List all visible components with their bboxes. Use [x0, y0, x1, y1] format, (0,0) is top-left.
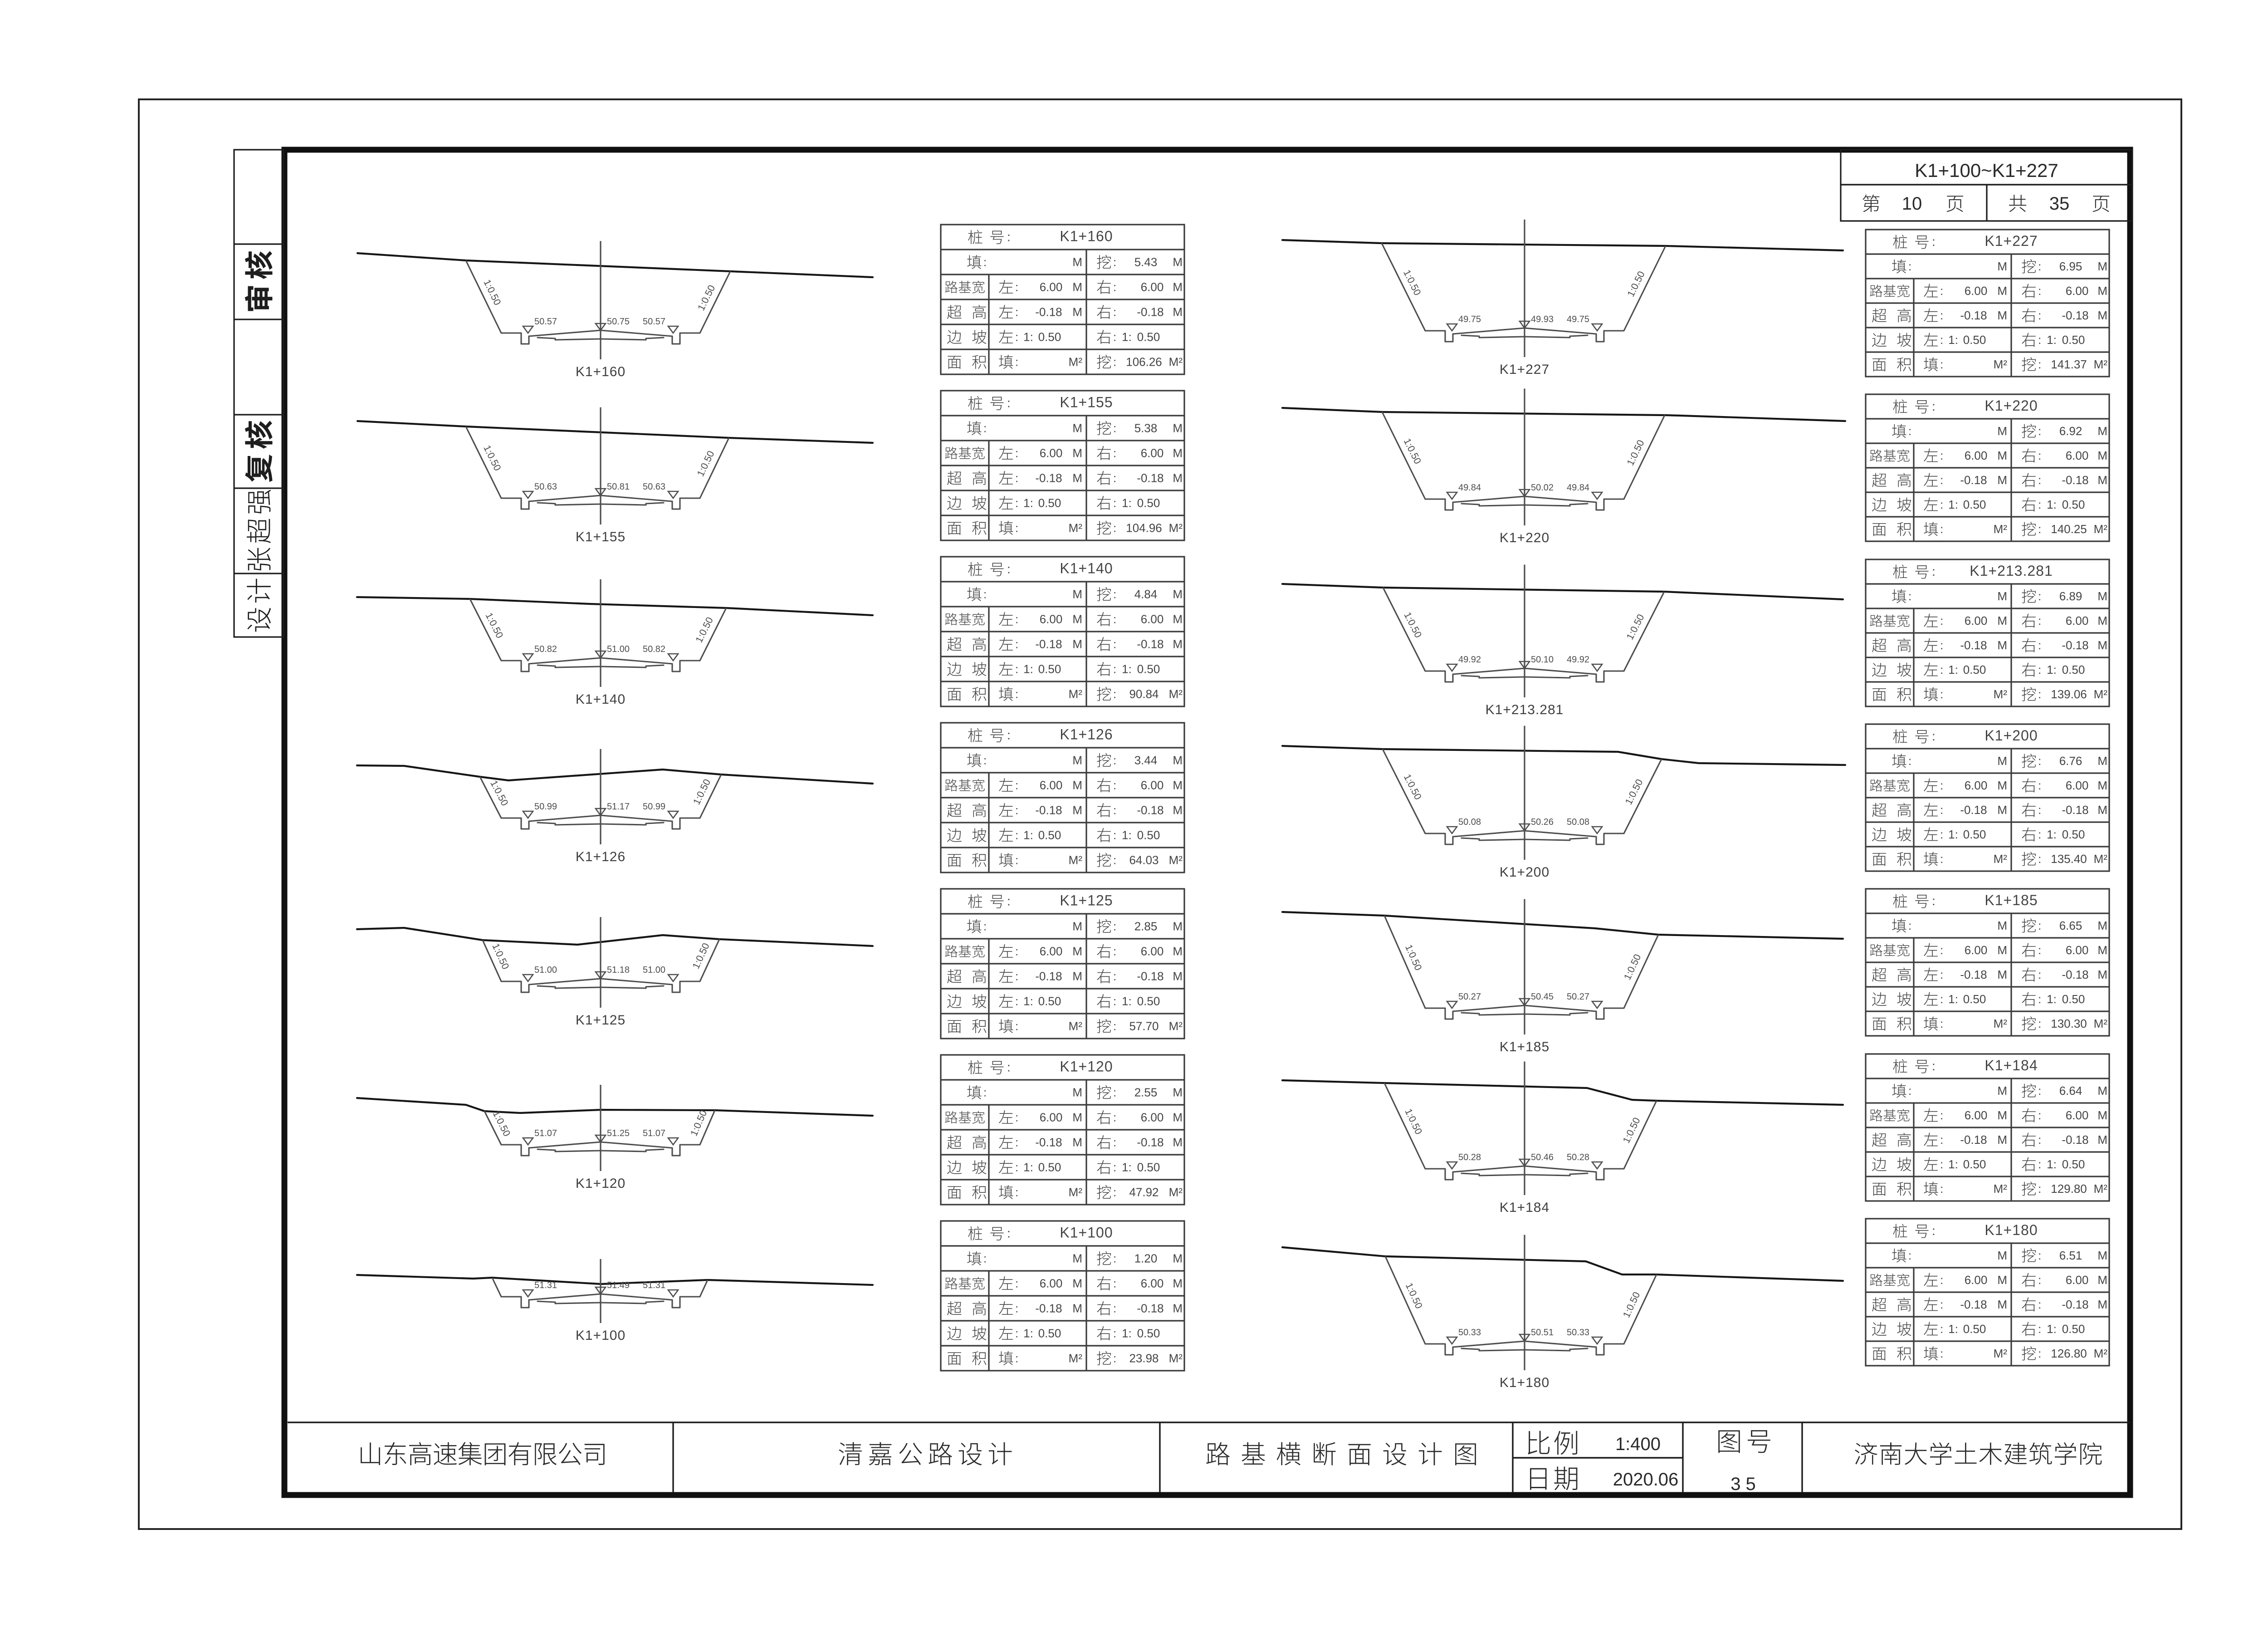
svg-text::: :	[1015, 804, 1018, 817]
svg-text::: :	[1932, 399, 1936, 413]
svg-text:M: M	[1072, 1111, 1082, 1124]
svg-text:6.00: 6.00	[1141, 945, 1164, 958]
svg-text::: :	[1007, 230, 1011, 244]
svg-text:50.46: 50.46	[1531, 1152, 1554, 1162]
svg-text::: :	[1113, 446, 1116, 460]
svg-text:M²: M²	[1994, 522, 2008, 536]
svg-text::: :	[2038, 1322, 2041, 1336]
svg-text::: :	[1113, 255, 1116, 269]
svg-text:M: M	[1072, 255, 1082, 269]
svg-text:M: M	[1072, 754, 1082, 767]
svg-text::: :	[2038, 1273, 2041, 1287]
svg-text::: :	[2038, 1108, 2041, 1122]
svg-text:M: M	[2097, 309, 2107, 322]
svg-text:M: M	[1072, 446, 1082, 460]
svg-text:M: M	[2097, 260, 2107, 273]
svg-text:104.96: 104.96	[1126, 521, 1162, 535]
svg-text:1:: 1:	[1948, 1322, 1958, 1336]
svg-text:M: M	[2097, 638, 2107, 652]
svg-text:6.00: 6.00	[1141, 613, 1164, 626]
svg-text::: :	[1015, 1161, 1018, 1174]
svg-text:M: M	[1173, 637, 1183, 651]
svg-text:3 5: 3 5	[1730, 1474, 1756, 1494]
svg-text::: :	[1113, 1277, 1116, 1290]
svg-text:50.63: 50.63	[534, 482, 557, 492]
svg-text:1:: 1:	[1122, 496, 1132, 510]
svg-text:-0.18: -0.18	[1137, 1136, 1163, 1149]
svg-text::: :	[2038, 358, 2041, 371]
svg-text:M: M	[1072, 1086, 1082, 1099]
svg-text:1:: 1:	[1948, 828, 1958, 841]
svg-text:K1+140: K1+140	[1060, 560, 1113, 577]
svg-text::: :	[1940, 968, 1943, 981]
svg-text:M²: M²	[1069, 1352, 1083, 1365]
svg-text:135.40: 135.40	[2051, 852, 2087, 866]
svg-text::: :	[1113, 1136, 1116, 1149]
svg-text:0.50: 0.50	[1137, 1161, 1160, 1174]
svg-text::: :	[2038, 473, 2041, 487]
svg-text::: :	[2038, 638, 2041, 652]
svg-text::: :	[1932, 1224, 1936, 1238]
svg-text:0.50: 0.50	[2062, 498, 2085, 511]
svg-text::: :	[1015, 280, 1018, 294]
svg-text:50.99: 50.99	[534, 802, 557, 812]
svg-text::: :	[1015, 355, 1018, 369]
svg-text:139.06: 139.06	[2051, 687, 2087, 701]
svg-text:0.50: 0.50	[1963, 828, 1986, 841]
svg-text:1:0.50: 1:0.50	[695, 449, 717, 478]
svg-text::: :	[1007, 1226, 1011, 1240]
svg-text:0.50: 0.50	[1038, 330, 1061, 344]
svg-text::: :	[1113, 613, 1116, 626]
svg-text:K1+227: K1+227	[1984, 233, 2038, 249]
svg-text:M: M	[2097, 943, 2107, 957]
svg-text::: :	[1113, 280, 1116, 294]
svg-text::: :	[1940, 498, 1943, 511]
svg-text::: :	[2038, 498, 2041, 511]
svg-text:49.93: 49.93	[1531, 314, 1554, 324]
svg-text:M: M	[2097, 1084, 2107, 1098]
svg-text:129.80: 129.80	[2051, 1182, 2087, 1196]
svg-text:0.50: 0.50	[1137, 330, 1160, 344]
svg-text:-0.18: -0.18	[1960, 309, 1987, 322]
svg-text:6.65: 6.65	[2059, 919, 2082, 932]
svg-text:M: M	[2097, 473, 2107, 487]
svg-text:M: M	[1997, 589, 2007, 603]
svg-text:51.49: 51.49	[607, 1280, 630, 1290]
svg-text:-0.18: -0.18	[1960, 638, 1987, 652]
svg-text:6.51: 6.51	[2059, 1249, 2082, 1262]
svg-text:1:400: 1:400	[1615, 1434, 1661, 1454]
svg-text::: :	[1113, 637, 1116, 651]
svg-text:-0.18: -0.18	[1960, 1298, 1987, 1311]
svg-text:0.50: 0.50	[1038, 995, 1061, 1008]
svg-text:50.57: 50.57	[643, 317, 665, 327]
svg-text:51.00: 51.00	[534, 965, 557, 975]
svg-text:M: M	[1072, 779, 1082, 792]
svg-text:1:: 1:	[2047, 498, 2057, 511]
svg-text::: :	[1113, 471, 1116, 485]
svg-text::: :	[1940, 473, 1943, 487]
svg-text:6.00: 6.00	[1141, 1111, 1164, 1124]
svg-text::: :	[2038, 1249, 2041, 1262]
svg-text:M: M	[1173, 1277, 1183, 1290]
svg-text::: :	[1015, 779, 1018, 792]
svg-text:1:: 1:	[1948, 498, 1958, 511]
svg-text::: :	[2038, 803, 2041, 817]
svg-text:M: M	[2097, 1133, 2107, 1147]
svg-text:90.84: 90.84	[1129, 687, 1158, 701]
svg-text:M: M	[1997, 968, 2007, 981]
svg-text:1:: 1:	[1023, 828, 1033, 842]
svg-text:K1+200: K1+200	[1500, 865, 1549, 880]
svg-text:M²: M²	[1994, 852, 2008, 866]
svg-text::: :	[2038, 992, 2041, 1006]
svg-text:6.00: 6.00	[1965, 943, 1988, 957]
svg-text:K1+155: K1+155	[1060, 394, 1113, 411]
svg-text:-0.18: -0.18	[1960, 968, 1987, 981]
svg-text:0.50: 0.50	[1038, 496, 1061, 510]
svg-text:M: M	[1072, 1252, 1082, 1265]
svg-text:K1+120: K1+120	[576, 1176, 626, 1191]
svg-text:2020.06: 2020.06	[1613, 1470, 1679, 1490]
svg-text:M: M	[1072, 637, 1082, 651]
svg-text::: :	[1940, 1182, 1943, 1196]
svg-text:M: M	[1997, 614, 2007, 627]
svg-text:M: M	[1072, 613, 1082, 626]
svg-text:6.00: 6.00	[1965, 1273, 1988, 1287]
svg-text:1:0.50: 1:0.50	[1403, 1107, 1424, 1136]
svg-text::: :	[1908, 754, 1911, 768]
svg-text:M: M	[2097, 1273, 2107, 1287]
svg-text:K1+180: K1+180	[1500, 1375, 1549, 1390]
svg-text:0.50: 0.50	[1038, 828, 1061, 842]
svg-text:M: M	[1997, 424, 2007, 438]
svg-text:-0.18: -0.18	[1035, 970, 1062, 983]
svg-text::: :	[2038, 424, 2041, 438]
svg-text:M: M	[1072, 920, 1082, 933]
svg-text:1:0.50: 1:0.50	[694, 615, 715, 644]
svg-text::: :	[1113, 828, 1116, 842]
svg-text:0.50: 0.50	[1137, 496, 1160, 510]
svg-text::: :	[2038, 1298, 2041, 1311]
svg-text:1:: 1:	[2047, 828, 2057, 841]
svg-text:K1+184: K1+184	[1500, 1200, 1549, 1215]
svg-text:M: M	[1173, 446, 1183, 460]
svg-text:1:: 1:	[1948, 992, 1958, 1006]
svg-text::: :	[1113, 920, 1116, 933]
svg-text:M: M	[1173, 754, 1183, 767]
svg-text:-0.18: -0.18	[1035, 471, 1062, 485]
svg-text:M²: M²	[1169, 1186, 1183, 1199]
svg-text::: :	[1940, 1347, 1943, 1360]
svg-text:51.07: 51.07	[643, 1128, 665, 1138]
svg-text:M: M	[2097, 803, 2107, 817]
svg-text:M: M	[1173, 255, 1183, 269]
svg-text:M²: M²	[1169, 1352, 1183, 1365]
svg-text::: :	[1113, 804, 1116, 817]
svg-text::: :	[1908, 260, 1911, 273]
svg-text:M: M	[1173, 1086, 1183, 1099]
svg-text:1:: 1:	[2047, 992, 2057, 1006]
svg-text:6.00: 6.00	[1965, 284, 1988, 298]
svg-text:1:: 1:	[1948, 333, 1958, 347]
svg-text:M: M	[2097, 754, 2107, 768]
svg-text:M²: M²	[1069, 1186, 1083, 1199]
svg-text:M²: M²	[1994, 687, 2008, 701]
svg-text::: :	[1015, 1302, 1018, 1315]
svg-text::: :	[1007, 1060, 1011, 1074]
svg-text:0.50: 0.50	[1963, 1322, 1986, 1336]
svg-text:K1+213.281: K1+213.281	[1970, 563, 2053, 579]
svg-text::: :	[1932, 564, 1936, 578]
svg-text::: :	[1113, 521, 1116, 535]
svg-text::: :	[1113, 1111, 1116, 1124]
svg-text:M: M	[1072, 471, 1082, 485]
svg-text:0.50: 0.50	[2062, 828, 2085, 841]
svg-text::: :	[1015, 853, 1018, 867]
svg-text::: :	[1015, 496, 1018, 510]
svg-text:0.50: 0.50	[1038, 1161, 1061, 1174]
svg-text:M: M	[1173, 471, 1183, 485]
svg-text:M: M	[1072, 804, 1082, 817]
svg-text:6.00: 6.00	[2066, 614, 2089, 627]
svg-text:50.75: 50.75	[607, 317, 630, 327]
svg-text:K1+184: K1+184	[1984, 1057, 2038, 1073]
svg-text:-0.18: -0.18	[2062, 1133, 2088, 1147]
svg-text::: :	[1940, 1273, 1943, 1287]
svg-text:35: 35	[2049, 194, 2070, 214]
svg-text:0.50: 0.50	[1038, 1327, 1061, 1340]
svg-text:M²: M²	[2094, 687, 2108, 701]
svg-text:M: M	[1997, 473, 2007, 487]
svg-text:M: M	[2097, 424, 2107, 438]
svg-text::: :	[1015, 1352, 1018, 1365]
svg-text::: :	[1015, 662, 1018, 676]
svg-text:K1+220: K1+220	[1984, 397, 2038, 414]
svg-text::: :	[1113, 1302, 1116, 1315]
svg-text:M: M	[1072, 1302, 1082, 1315]
svg-text:M: M	[1997, 754, 2007, 768]
svg-text:50.99: 50.99	[643, 802, 665, 812]
svg-text:51.00: 51.00	[607, 644, 630, 654]
svg-text::: :	[1932, 235, 1936, 249]
svg-text::: :	[1015, 970, 1018, 983]
svg-text::: :	[1015, 995, 1018, 1008]
svg-text:M: M	[2097, 1249, 2107, 1262]
svg-text:1:: 1:	[1023, 330, 1033, 344]
svg-text:0.50: 0.50	[2062, 1322, 2085, 1336]
svg-text:6.00: 6.00	[1040, 613, 1063, 626]
svg-text:1:: 1:	[1023, 496, 1033, 510]
svg-text::: :	[2038, 919, 2041, 932]
svg-text::: :	[1113, 945, 1116, 958]
svg-text::: :	[2038, 1084, 2041, 1098]
svg-text:0.50: 0.50	[2062, 1157, 2085, 1171]
svg-text:-0.18: -0.18	[1035, 637, 1062, 651]
svg-text:M²: M²	[1994, 358, 2008, 371]
svg-text::: :	[1113, 305, 1116, 319]
svg-text:50.33: 50.33	[1567, 1328, 1589, 1338]
svg-text:1:: 1:	[1122, 828, 1132, 842]
svg-text::: :	[2038, 1133, 2041, 1147]
svg-text:1:: 1:	[1023, 1327, 1033, 1340]
svg-text:50.81: 50.81	[607, 482, 630, 492]
svg-text:-0.18: -0.18	[1035, 305, 1062, 319]
svg-text::: :	[983, 422, 987, 435]
svg-text::: :	[2038, 589, 2041, 603]
svg-text:0.50: 0.50	[2062, 333, 2085, 347]
svg-text::: :	[1940, 1157, 1943, 1171]
svg-text::: :	[2038, 1347, 2041, 1360]
svg-text:1:0.50: 1:0.50	[488, 779, 510, 808]
svg-text:M: M	[1997, 1084, 2007, 1098]
svg-text::: :	[1940, 449, 1943, 462]
svg-text:M²: M²	[2094, 1182, 2108, 1196]
svg-text:M²: M²	[2094, 1347, 2108, 1360]
svg-text:M: M	[1173, 280, 1183, 294]
svg-text::: :	[1113, 1252, 1116, 1265]
svg-text:50.08: 50.08	[1458, 817, 1481, 827]
svg-text:1:0.50: 1:0.50	[1625, 438, 1647, 467]
svg-text:49.75: 49.75	[1567, 314, 1589, 324]
svg-text:6.00: 6.00	[1040, 945, 1063, 958]
svg-text:M: M	[2097, 614, 2107, 627]
svg-text:4.84: 4.84	[1134, 588, 1158, 601]
svg-text:2.55: 2.55	[1134, 1086, 1158, 1099]
svg-text:6.76: 6.76	[2059, 754, 2082, 768]
svg-text:50.27: 50.27	[1458, 992, 1481, 1002]
svg-text:K1+200: K1+200	[1984, 727, 2038, 744]
svg-text::: :	[1015, 1327, 1018, 1340]
svg-text:M: M	[2097, 589, 2107, 603]
svg-text:50.02: 50.02	[1531, 483, 1554, 493]
svg-text:6.00: 6.00	[2066, 1273, 2089, 1287]
svg-text:51.31: 51.31	[534, 1280, 557, 1290]
svg-text:M: M	[1173, 779, 1183, 792]
svg-text:M²: M²	[1069, 687, 1083, 701]
svg-text:50.27: 50.27	[1567, 992, 1589, 1002]
svg-text:M: M	[1173, 1111, 1183, 1124]
svg-text:-0.18: -0.18	[2062, 473, 2088, 487]
svg-text:M: M	[1072, 305, 1082, 319]
svg-text::: :	[1007, 396, 1011, 410]
svg-text::: :	[1007, 894, 1011, 908]
svg-text:51.18: 51.18	[607, 965, 630, 975]
svg-text::: :	[1015, 1277, 1018, 1290]
svg-text:M: M	[2097, 779, 2107, 792]
svg-text::: :	[1940, 852, 1943, 866]
svg-text::: :	[2038, 852, 2041, 866]
svg-text::: :	[1113, 995, 1116, 1008]
svg-text:0.50: 0.50	[2062, 992, 2085, 1006]
svg-text:K1+120: K1+120	[1060, 1059, 1113, 1075]
svg-text:51.07: 51.07	[534, 1128, 557, 1138]
svg-text:M²: M²	[1169, 521, 1183, 535]
svg-text::: :	[1940, 687, 1943, 701]
svg-text:M: M	[1173, 970, 1183, 983]
svg-text:50.26: 50.26	[1531, 817, 1554, 827]
svg-text::: :	[2038, 943, 2041, 957]
svg-text::: :	[1113, 355, 1116, 369]
svg-text::: :	[1908, 919, 1911, 932]
svg-text:64.03: 64.03	[1129, 853, 1158, 867]
svg-text:6.00: 6.00	[2066, 943, 2089, 957]
svg-text:1:: 1:	[1122, 662, 1132, 676]
svg-text::: :	[2038, 284, 2041, 298]
svg-text:0.50: 0.50	[1963, 1157, 1986, 1171]
svg-text::: :	[1113, 1186, 1116, 1199]
svg-text::: :	[1015, 446, 1018, 460]
svg-text:M: M	[1997, 260, 2007, 273]
svg-text:M: M	[1072, 1136, 1082, 1149]
svg-text:M²: M²	[2094, 522, 2108, 536]
svg-text::: :	[1940, 1298, 1943, 1311]
svg-text:K1+100: K1+100	[1060, 1225, 1113, 1241]
svg-text:6.00: 6.00	[1040, 1277, 1063, 1290]
svg-text::: :	[1940, 779, 1943, 792]
svg-text:M: M	[2097, 284, 2107, 298]
svg-text:-0.18: -0.18	[2062, 309, 2088, 322]
svg-text:6.00: 6.00	[1141, 280, 1164, 294]
svg-text:1:0.50: 1:0.50	[481, 443, 503, 472]
svg-text:1:0.50: 1:0.50	[490, 1109, 512, 1138]
svg-text:49.92: 49.92	[1567, 655, 1589, 665]
svg-text:0.50: 0.50	[1038, 662, 1061, 676]
svg-text:0.50: 0.50	[1137, 995, 1160, 1008]
svg-text::: :	[1940, 1017, 1943, 1030]
svg-text:1:0.50: 1:0.50	[1403, 1281, 1425, 1310]
svg-text:1:0.50: 1:0.50	[1624, 613, 1647, 642]
svg-text:6.00: 6.00	[1040, 1111, 1063, 1124]
svg-text:M: M	[1173, 1302, 1183, 1315]
svg-text::: :	[983, 1086, 987, 1099]
svg-text:50.57: 50.57	[534, 317, 557, 327]
svg-text:-0.18: -0.18	[1960, 803, 1987, 817]
svg-text:1:0.50: 1:0.50	[691, 777, 713, 806]
svg-text:1.20: 1.20	[1134, 1252, 1158, 1265]
svg-text::: :	[1932, 894, 1936, 908]
svg-text:K1+160: K1+160	[576, 364, 626, 379]
svg-text:23.98: 23.98	[1129, 1352, 1158, 1365]
svg-text::: :	[1015, 471, 1018, 485]
svg-text::: :	[1113, 588, 1116, 601]
svg-text:1:0.50: 1:0.50	[688, 1108, 709, 1137]
svg-text::: :	[983, 920, 987, 933]
svg-text:M²: M²	[2094, 358, 2108, 371]
svg-text:-0.18: -0.18	[1035, 1302, 1062, 1315]
svg-text:141.37: 141.37	[2051, 358, 2087, 371]
svg-text:50.28: 50.28	[1458, 1152, 1481, 1162]
svg-text:M: M	[2097, 449, 2107, 462]
svg-text:50.63: 50.63	[643, 482, 665, 492]
svg-text:0.50: 0.50	[1963, 992, 1986, 1006]
svg-text:47.92: 47.92	[1129, 1186, 1158, 1199]
svg-text:K1+126: K1+126	[1060, 726, 1113, 743]
svg-text:50.82: 50.82	[643, 644, 665, 654]
svg-text:1:0.50: 1:0.50	[1621, 1116, 1642, 1145]
svg-text:M: M	[1997, 1133, 2007, 1147]
svg-text:K1+100~K1+227: K1+100~K1+227	[1915, 160, 2058, 181]
svg-text:M²: M²	[2094, 852, 2108, 866]
svg-text::: :	[2038, 754, 2041, 768]
svg-text:-0.18: -0.18	[1137, 305, 1163, 319]
svg-text:57.70: 57.70	[1129, 1020, 1158, 1033]
svg-text:K1+185: K1+185	[1984, 892, 2038, 908]
svg-text:0.50: 0.50	[1137, 828, 1160, 842]
svg-text:M²: M²	[1169, 1020, 1183, 1033]
svg-text:1:0.50: 1:0.50	[1621, 1290, 1642, 1319]
